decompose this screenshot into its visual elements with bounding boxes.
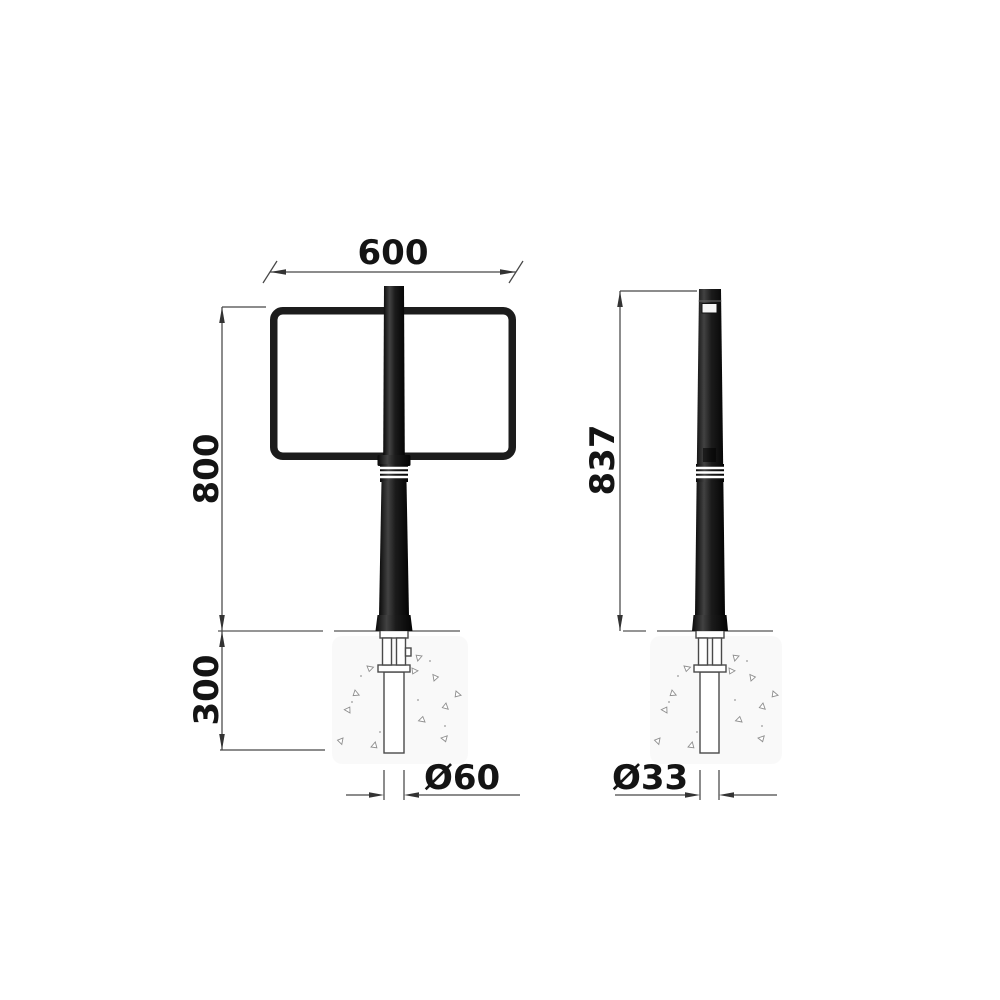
concrete-dot <box>677 675 679 677</box>
anchor-collar-front <box>380 631 408 639</box>
post-front-base-flare <box>376 615 413 631</box>
dim-height-label-side: 837 <box>583 425 623 496</box>
dim-depth-label: 300 <box>187 655 227 726</box>
concrete-dot <box>734 699 736 701</box>
anchor-bar-left-front <box>383 638 392 665</box>
post-front-lower <box>379 481 409 616</box>
concrete-dot <box>429 660 431 662</box>
concrete-dot <box>746 660 748 662</box>
anchor-bar-right-front <box>397 638 406 665</box>
concrete-dot <box>351 701 353 703</box>
technical-drawing-canvas: 600 800 300 Ø60 <box>0 0 1000 1000</box>
concrete-dot <box>379 731 381 733</box>
mount-slot-lower <box>703 448 716 462</box>
concrete-dot <box>444 725 446 727</box>
anchor-rod-side <box>700 672 719 753</box>
front-view: 600 800 300 Ø60 <box>187 233 523 800</box>
dim-sign-width: 600 <box>263 233 523 283</box>
anchor-bar-right-side <box>713 638 722 665</box>
anchor-flange-side <box>694 665 726 672</box>
technical-drawing-page: 600 800 300 Ø60 <box>0 0 1000 1000</box>
post-front <box>376 286 413 631</box>
anchor-flange-front <box>378 665 410 672</box>
concrete-dot <box>360 675 362 677</box>
anchor-nub-front <box>406 648 412 656</box>
dim-diameter-label-front: Ø60 <box>424 758 500 798</box>
dim-diameter-front: Ø60 <box>346 758 520 800</box>
dim-diameter-label-side: Ø33 <box>612 758 688 798</box>
concrete-dot <box>761 725 763 727</box>
anchor-bar-left-side <box>699 638 708 665</box>
post-side <box>692 289 728 631</box>
dim-height-above-ground-side: 837 <box>583 291 697 631</box>
mount-slot-upper <box>702 304 717 314</box>
concrete-dot <box>417 699 419 701</box>
dim-diameter-side: Ø33 <box>612 758 777 800</box>
post-side-base-flare <box>692 615 728 631</box>
post-front-upper <box>383 286 405 456</box>
side-view: 837 Ø33 <box>583 289 782 800</box>
concrete-dot <box>696 731 698 733</box>
concrete-dot <box>668 701 670 703</box>
anchor-collar-side <box>696 631 724 639</box>
dim-height-label-front: 800 <box>187 434 227 505</box>
dim-embed-depth: 300 <box>187 631 325 750</box>
dim-sign-width-label: 600 <box>358 233 429 273</box>
dim-height-above-ground-front: 800 <box>187 307 266 631</box>
anchor-rod-front <box>384 672 404 753</box>
